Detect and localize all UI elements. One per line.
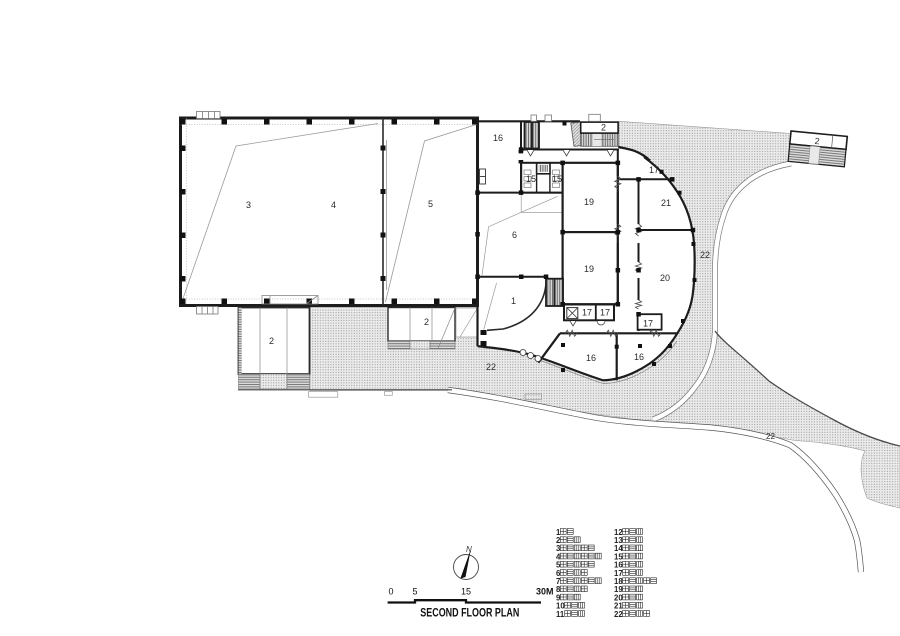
svg-text:19: 19	[584, 197, 594, 207]
svg-text:4: 4	[331, 200, 336, 210]
svg-text:22: 22	[700, 250, 710, 260]
svg-text:5: 5	[413, 586, 418, 596]
svg-text:17: 17	[582, 308, 592, 318]
svg-text:2: 2	[424, 317, 429, 327]
svg-text:11: 11	[556, 610, 565, 619]
svg-text:20: 20	[660, 273, 670, 283]
svg-text:21: 21	[661, 198, 671, 208]
svg-text:SECOND FLOOR PLAN: SECOND FLOOR PLAN	[420, 606, 519, 620]
svg-text:5: 5	[428, 199, 433, 209]
svg-text:6: 6	[512, 230, 517, 240]
svg-text:15: 15	[526, 174, 536, 184]
svg-text:3: 3	[246, 200, 251, 210]
svg-text:22: 22	[486, 362, 496, 372]
svg-text:17: 17	[643, 319, 653, 329]
svg-text:2: 2	[814, 136, 820, 146]
svg-text:16: 16	[634, 352, 644, 362]
svg-text:1: 1	[511, 296, 516, 306]
svg-text:16: 16	[586, 353, 596, 363]
svg-text:2: 2	[601, 123, 606, 133]
svg-text:22: 22	[766, 432, 775, 441]
svg-text:15: 15	[461, 586, 471, 596]
svg-text:22: 22	[614, 610, 623, 619]
svg-text:19: 19	[584, 264, 594, 274]
svg-text:17: 17	[649, 165, 659, 175]
svg-text:16: 16	[493, 133, 503, 143]
svg-text:30M: 30M	[536, 586, 554, 596]
svg-text:N: N	[466, 545, 472, 554]
svg-text:0: 0	[389, 586, 394, 596]
svg-text:17: 17	[600, 308, 610, 318]
svg-text:2: 2	[269, 336, 274, 346]
svg-text:15: 15	[552, 174, 562, 184]
